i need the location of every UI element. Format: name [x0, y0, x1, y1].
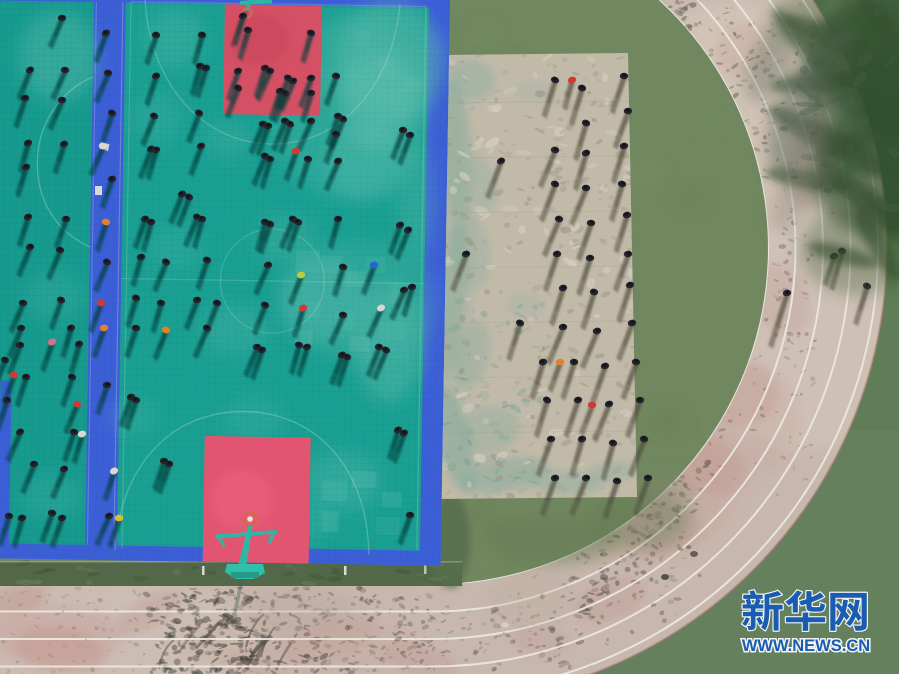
svg-text:WWW.NEWS.CN: WWW.NEWS.CN — [742, 637, 870, 655]
